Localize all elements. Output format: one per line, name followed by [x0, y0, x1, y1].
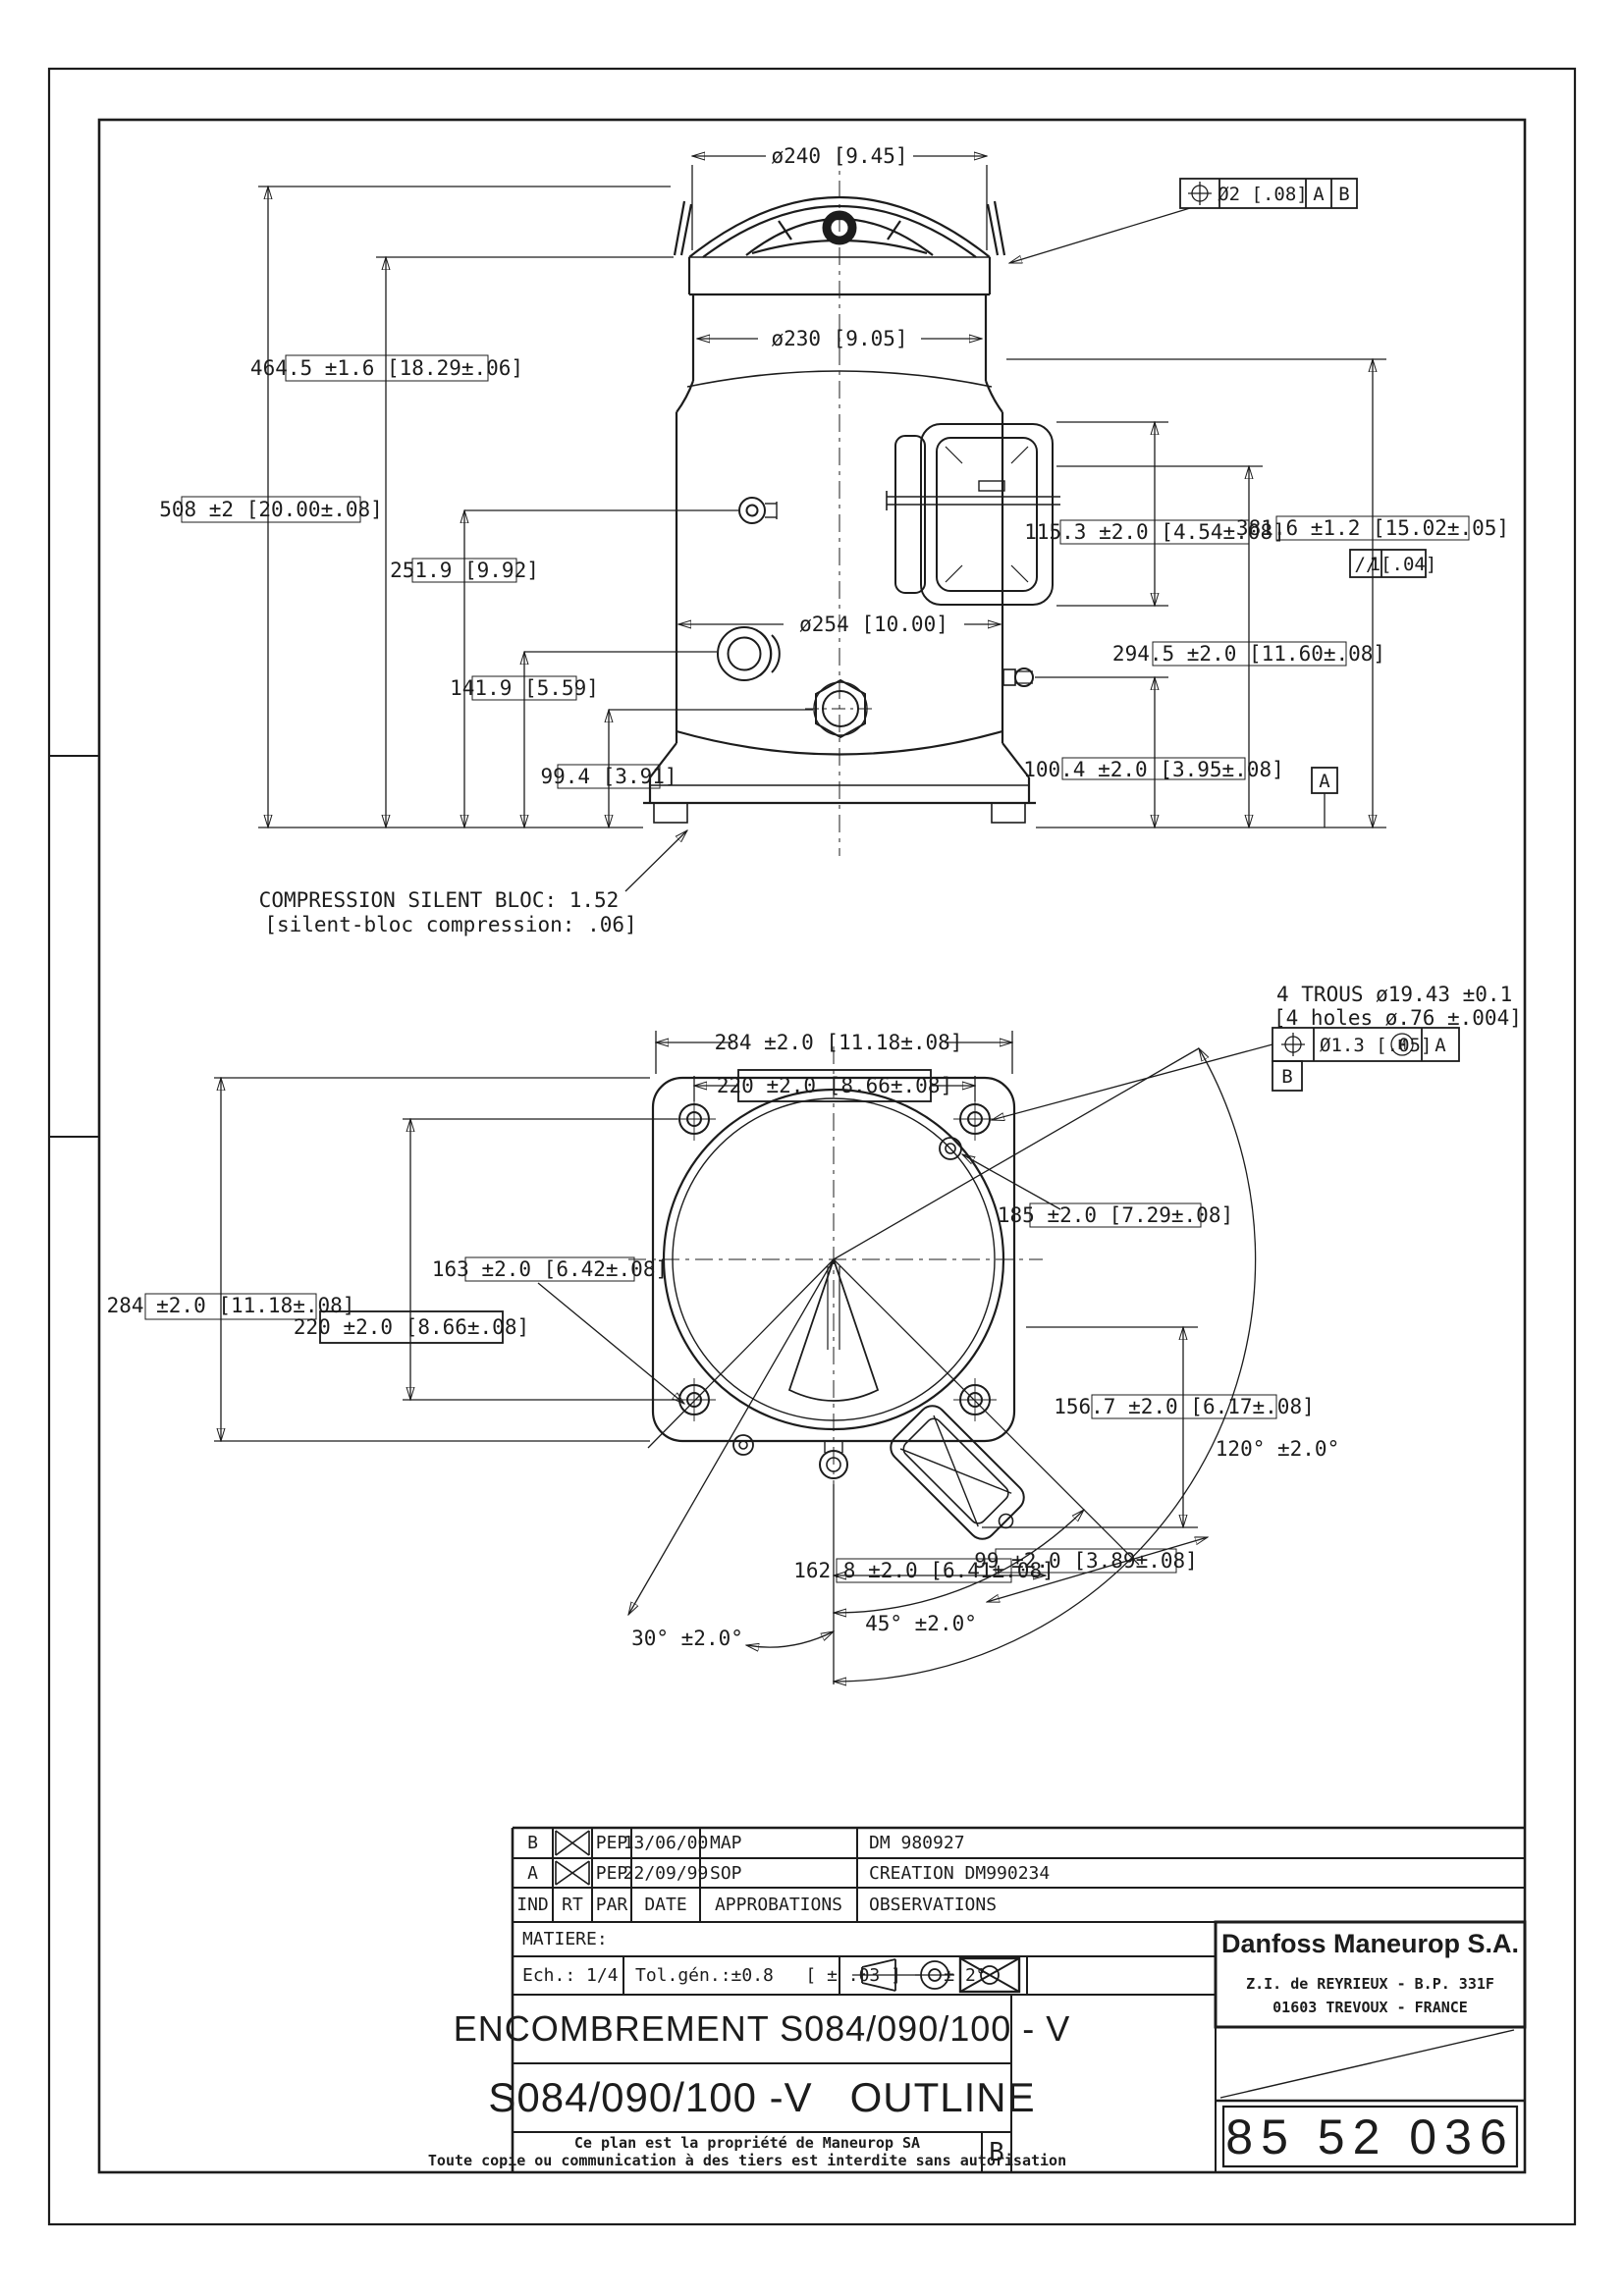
company-address-line2: 01603 TREVOUX - FRANCE — [1216, 1999, 1525, 2016]
dim-h294: 294.5 ±2.0 [11.60±.08] — [1112, 642, 1385, 666]
dim-h141: 141.9 [5.59] — [450, 676, 599, 700]
revision-row-date: 13/06/00 — [631, 1828, 700, 1858]
property-note-line1: Ce plan est la propriété de Maneurop SA — [513, 2134, 982, 2152]
revision-row-ind: A — [513, 1858, 553, 1888]
dim-w220-top: 220 ±2.0 [8.66±.08] — [717, 1074, 952, 1097]
revision-header-observations: OBSERVATIONS — [869, 1888, 1222, 1922]
holes-note-line1: 4 TROUS ø19.43 ±0.1 — [1276, 983, 1512, 1006]
side-view-fittings — [718, 424, 1060, 737]
scale-label: Ech.: 1/4 — [522, 1956, 621, 1995]
revision-header-approbations: APPROBATIONS — [700, 1888, 857, 1922]
drawing-number: 85 52 036 — [1223, 2107, 1517, 2166]
parallelism-value: 1[.04] — [1370, 554, 1437, 575]
revision-letter-badge: B — [982, 2132, 1011, 2172]
bottom-view-dimensions — [214, 1028, 1459, 1684]
datum-b-label: B — [1281, 1066, 1292, 1088]
dim-dia254: ø254 [10.00] — [799, 613, 948, 636]
revision-row-ind: B — [513, 1828, 553, 1858]
dim-d163: 163 ±2.0 [6.42±.08] — [432, 1257, 668, 1281]
revision-row-approbation: MAP — [710, 1828, 857, 1858]
drawing-title-french: ENCOMBREMENT S084/090/100 - V — [513, 1995, 1011, 2063]
datum-a-label: A — [1319, 771, 1330, 792]
material-label: MATIERE: — [522, 1922, 817, 1956]
dim-dia240: ø240 [9.45] — [771, 144, 907, 168]
silent-bloc-note-line2: [silent-bloc compression: .06] — [264, 913, 636, 936]
company-address-line1: Z.I. de REYRIEUX - B.P. 331F — [1216, 1975, 1525, 1993]
general-tolerance-label: Tol.gén.:±0.8 [ ± .03 ] ± 2° — [635, 1956, 838, 1995]
drawing-title-english: S084/090/100 -V OUTLINE — [513, 2063, 1011, 2132]
dim-h508: 508 ±2 [20.00±.08] — [159, 498, 383, 521]
dim-d99: 99 ±2.0 [3.89±.08] — [974, 1549, 1198, 1573]
drawing-sheet: ø240 [9.45] ø230 [9.05] ø254 [10.00] 508… — [0, 0, 1624, 2296]
side-view-outline — [643, 147, 1036, 856]
dim-d185: 185 ±2.0 [7.29±.08] — [998, 1203, 1233, 1227]
dim-h284-left: 284 ±2.0 [11.18±.08] — [107, 1294, 355, 1317]
revision-header-rt: RT — [553, 1888, 592, 1922]
dim-w284-top: 284 ±2.0 [11.18±.08] — [715, 1031, 963, 1054]
dim-h100: 100.4 ±2.0 [3.95±.08] — [1023, 758, 1284, 781]
position-tolerance-value: Ø2 [.08] — [1218, 184, 1308, 205]
datum-ref-b: B — [1338, 184, 1349, 205]
revision-header-ind: IND — [513, 1888, 553, 1922]
dim-d156: 156.7 ±2.0 [6.17±.08] — [1054, 1395, 1315, 1418]
holes-note-line2: [4 holes ø.76 ±.004] — [1273, 1006, 1522, 1030]
revision-row-observation: CREATION DM990234 — [869, 1858, 1222, 1888]
dim-h220-left: 220 ±2.0 [8.66±.08] — [294, 1315, 529, 1339]
dim-a30: 30° ±2.0° — [631, 1627, 743, 1650]
revision-header-date: DATE — [631, 1888, 700, 1922]
revision-row-date: 22/09/99 — [631, 1858, 700, 1888]
revision-header-par: PAR — [592, 1888, 631, 1922]
dim-h464: 464.5 ±1.6 [18.29±.06] — [250, 356, 523, 380]
dim-a120: 120° ±2.0° — [1216, 1437, 1339, 1461]
dim-a45: 45° ±2.0° — [865, 1612, 977, 1635]
revision-row-approbation: SOP — [710, 1858, 857, 1888]
silent-bloc-note-line1: COMPRESSION SILENT BLOC: 1.52 — [259, 888, 620, 912]
revision-row-observation: DM 980927 — [869, 1828, 1222, 1858]
datum-ref-a: A — [1313, 184, 1325, 205]
company-name: Danfoss Maneurop S.A. — [1216, 1926, 1525, 1961]
dim-h99: 99.4 [3.91] — [540, 765, 677, 788]
dim-h251: 251.9 [9.92] — [390, 559, 539, 582]
bottom-view-outline — [628, 1046, 1043, 1549]
property-note-line2: Toute copie ou communication à des tiers… — [513, 2152, 982, 2169]
holes-tolerance-value: Ø1.3 [.05] — [1320, 1035, 1432, 1056]
dim-dia230: ø230 [9.05] — [771, 327, 907, 350]
dim-h381: 381.6 ±1.2 [15.02±.05] — [1236, 516, 1509, 540]
material-modifier-icon: M — [1398, 1039, 1406, 1053]
side-view-dimension-texts: ø240 [9.45] ø230 [9.05] ø254 [10.00] 508… — [159, 144, 1509, 936]
holes-datum-a: A — [1435, 1035, 1446, 1056]
